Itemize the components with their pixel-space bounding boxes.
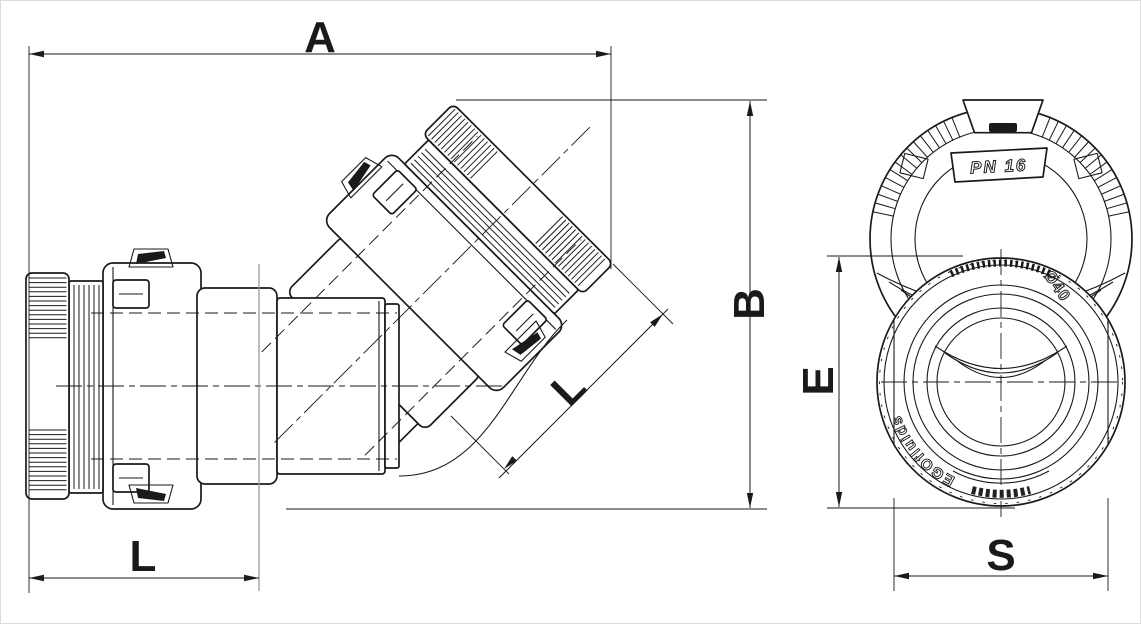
dim-label-l-diagonal: L: [542, 362, 596, 416]
arrowhead: [244, 575, 259, 581]
dim-label-l-socket: L: [130, 532, 157, 581]
arrowhead: [747, 101, 753, 116]
arrowhead: [894, 573, 909, 579]
dim-label-e: E: [794, 366, 843, 395]
arrowhead: [596, 51, 611, 57]
cap-notch: [989, 123, 1017, 132]
technical-drawing: PN 16 Ø40 EGOfluids: [1, 1, 1141, 624]
arrowhead: [836, 492, 842, 507]
drawing-page: PN 16 Ø40 EGOfluids: [0, 0, 1141, 624]
arrowhead: [29, 575, 44, 581]
pressure-rating-marking: PN 16: [970, 156, 1028, 178]
arrowhead: [29, 51, 44, 57]
dim-label-b: B: [725, 288, 774, 320]
side-view: [26, 73, 644, 509]
dim-label-s: S: [986, 531, 1015, 580]
arrowhead: [1093, 573, 1108, 579]
extension-line: [451, 416, 509, 474]
extension-line: [613, 264, 673, 324]
arrowhead: [836, 257, 842, 272]
end-view: PN 16 Ø40 EGOfluids: [870, 100, 1132, 517]
dim-label-a: A: [304, 13, 336, 62]
arrowhead: [747, 493, 753, 508]
